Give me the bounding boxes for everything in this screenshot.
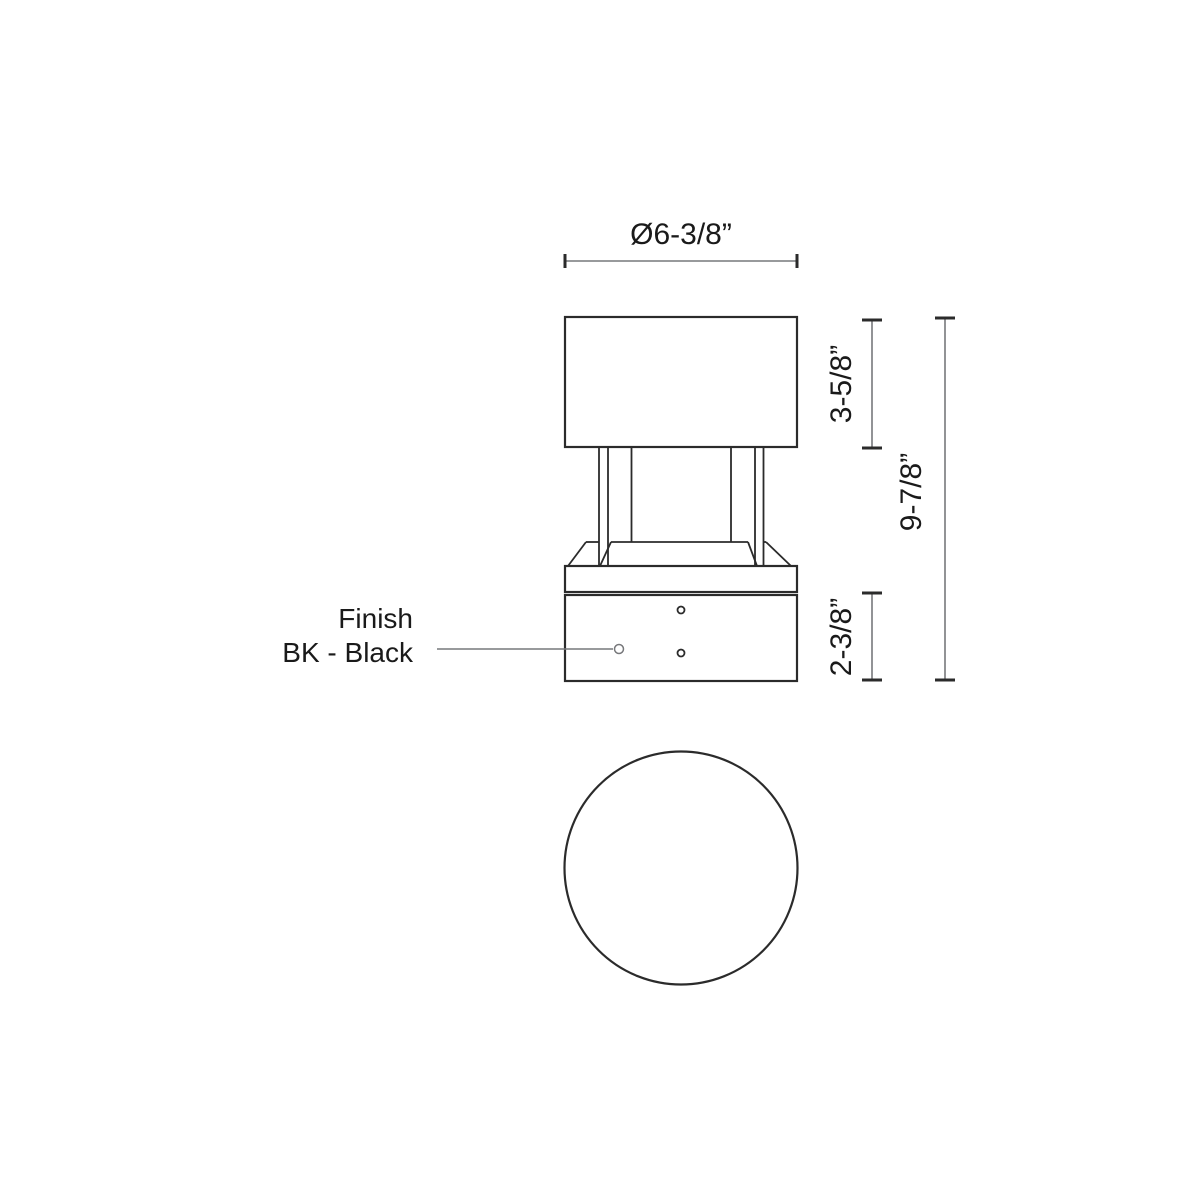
base-outline [565,595,797,681]
shade-height-dimension-label: 3-5/8” [825,345,858,423]
diameter-dimension-label: Ø6-3/8” [630,218,732,251]
base-height-dimension-label: 2-3/8” [825,598,858,676]
top-view-circle [565,752,798,985]
shade-height-dimension: 3-5/8” [825,320,882,448]
technical-drawing: Ø6-3/8” 3-5/8” 2-3/8” 9-7/8” [0,0,1200,1200]
shade-outline [565,317,797,447]
collar-outline [565,566,797,592]
cap-chamfer-line [568,542,586,566]
cap-chamfer-line [600,542,611,566]
screw-hole-lower [678,650,685,657]
dimensions: Ø6-3/8” 3-5/8” 2-3/8” 9-7/8” [565,218,955,680]
finish-annotation: Finish BK - Black [282,603,623,668]
overall-height-dimension: 9-7/8” [895,318,955,680]
top-view [565,752,798,985]
front-view [565,317,797,681]
diameter-dimension: Ø6-3/8” [565,218,797,268]
finish-label-line2: BK - Black [282,637,414,668]
finish-leader-dot [615,645,624,654]
spec-sheet-page: Ø6-3/8” 3-5/8” 2-3/8” 9-7/8” [0,0,1200,1200]
finish-label-line1: Finish [338,603,413,634]
screw-hole-upper [678,607,685,614]
cap-chamfer-line [766,542,791,566]
base-height-dimension: 2-3/8” [825,593,882,680]
overall-height-dimension-label: 9-7/8” [895,453,928,531]
